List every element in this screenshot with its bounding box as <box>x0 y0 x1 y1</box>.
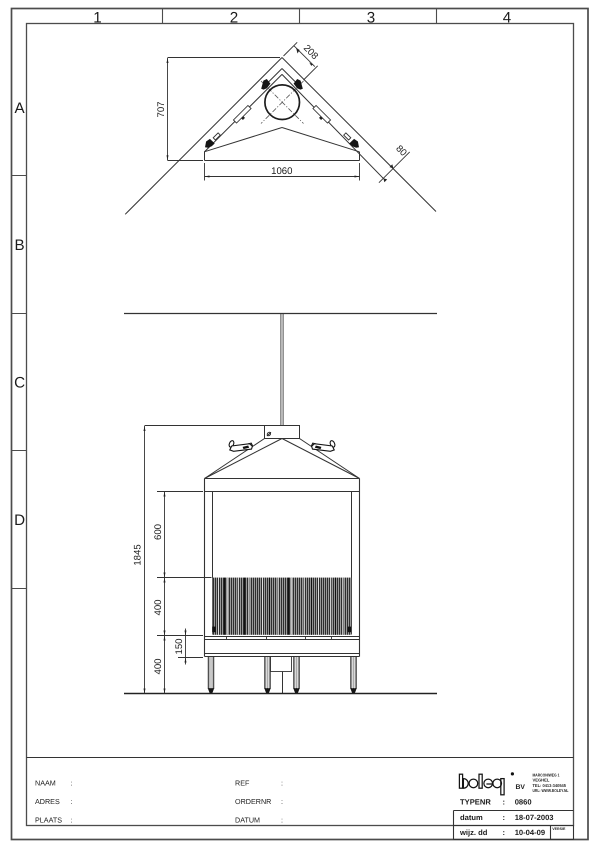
svg-text:400: 400 <box>153 658 164 674</box>
svg-text:2: 2 <box>230 9 238 26</box>
svg-text:MARCONIWEG 1: MARCONIWEG 1 <box>533 772 561 777</box>
svg-text:600: 600 <box>153 524 164 540</box>
svg-text:3: 3 <box>367 9 375 26</box>
svg-text:B: B <box>15 237 25 254</box>
svg-text:1060: 1060 <box>271 166 292 177</box>
svg-text:C: C <box>14 375 25 392</box>
svg-text::: : <box>281 797 283 806</box>
svg-text:URL: WWW.BOLEY.NL: URL: WWW.BOLEY.NL <box>533 788 569 793</box>
svg-text:datum: datum <box>460 813 483 822</box>
svg-text::: : <box>71 797 73 806</box>
svg-text:VERSIE: VERSIE <box>552 827 566 831</box>
svg-text:wijz. dd: wijz. dd <box>459 828 488 837</box>
svg-text:A: A <box>15 100 26 117</box>
svg-text:TEL: 0413-340545: TEL: 0413-340545 <box>533 783 567 788</box>
svg-text:BV: BV <box>516 784 526 791</box>
svg-text:REF: REF <box>235 779 250 788</box>
svg-text:10-04-09: 10-04-09 <box>515 828 545 837</box>
svg-text:707: 707 <box>156 101 167 117</box>
svg-text::: : <box>281 816 283 825</box>
svg-text::: : <box>71 779 73 788</box>
svg-text:NAAM: NAAM <box>35 779 56 788</box>
svg-text::: : <box>281 779 283 788</box>
svg-text:1: 1 <box>93 9 101 26</box>
svg-text:18-07-2003: 18-07-2003 <box>515 813 554 822</box>
svg-text:ORDERNR: ORDERNR <box>235 797 271 806</box>
svg-text:1845: 1845 <box>133 544 144 565</box>
svg-text:DATUM: DATUM <box>235 816 260 825</box>
svg-text:400: 400 <box>153 599 164 615</box>
svg-text::: : <box>503 813 506 822</box>
svg-text:0860: 0860 <box>515 797 532 806</box>
svg-text:150: 150 <box>174 638 185 654</box>
svg-text:D: D <box>14 512 25 529</box>
svg-text:PLAATS: PLAATS <box>35 816 62 825</box>
svg-text:ADRES: ADRES <box>35 797 60 806</box>
svg-text::: : <box>503 797 506 806</box>
svg-text::: : <box>71 816 73 825</box>
svg-text:TYPENR: TYPENR <box>460 797 491 806</box>
svg-text::: : <box>503 828 506 837</box>
svg-text:VEGHEL: VEGHEL <box>533 778 550 783</box>
svg-text:4: 4 <box>503 9 511 26</box>
